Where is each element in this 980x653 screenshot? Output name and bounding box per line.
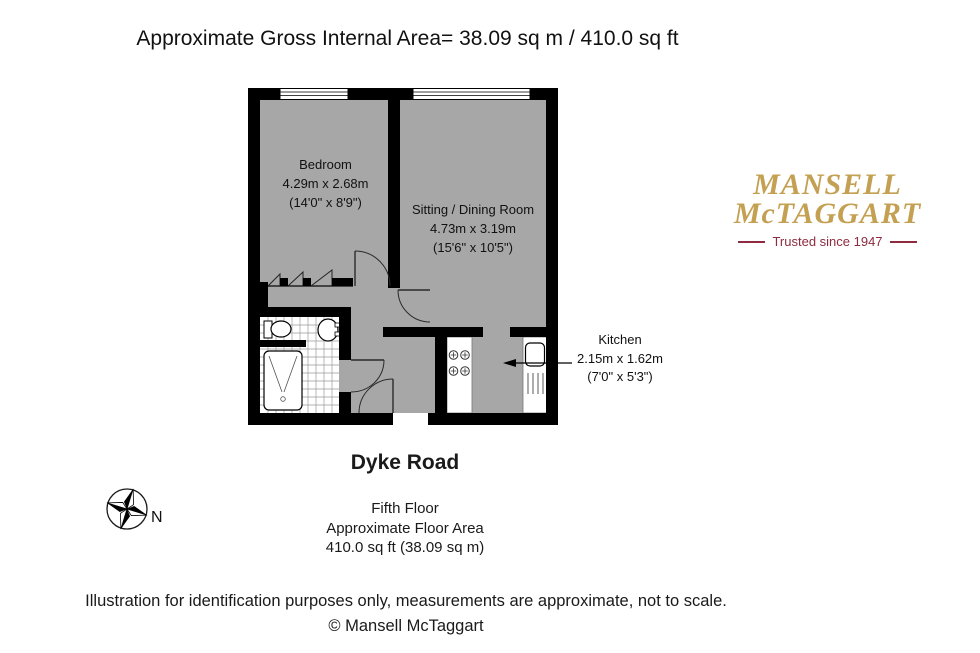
page-title: Approximate Gross Internal Area= 38.09 s… bbox=[0, 27, 815, 51]
street-name: Dyke Road bbox=[255, 451, 555, 475]
sitting-name: Sitting / Dining Room bbox=[397, 200, 549, 219]
toilet-icon bbox=[264, 321, 291, 338]
kitchen-imperial: (7'0" x 5'3") bbox=[566, 368, 674, 387]
bedroom-imperial: (14'0" x 8'9") bbox=[258, 193, 393, 212]
tagline-rule-right bbox=[890, 241, 917, 243]
stove-icon bbox=[447, 337, 472, 413]
compass-icon: N bbox=[100, 483, 172, 539]
sitting-imperial: (15'6" x 10'5") bbox=[397, 238, 549, 257]
kitchen-label: Kitchen 2.15m x 1.62m (7'0" x 5'3") bbox=[566, 331, 674, 387]
kitchen-pointer-arrow-icon bbox=[500, 355, 575, 371]
area-value: 410.0 sq ft (38.09 sq m) bbox=[255, 538, 555, 558]
bedroom-metric: 4.29m x 2.68m bbox=[258, 174, 393, 193]
kitchen-metric: 2.15m x 1.62m bbox=[566, 350, 674, 369]
disclaimer-text: Illustration for identification purposes… bbox=[0, 589, 812, 614]
entrance-opening bbox=[393, 413, 428, 425]
kitchen-name: Kitchen bbox=[566, 331, 674, 350]
area-label: Approximate Floor Area bbox=[255, 519, 555, 539]
logo-name-line1: MANSELL bbox=[730, 170, 925, 199]
floor-details: Fifth Floor Approximate Floor Area 410.0… bbox=[255, 499, 555, 558]
logo-tagline: Trusted since 1947 bbox=[730, 234, 925, 249]
agency-logo: MANSELL McTAGGART Trusted since 1947 bbox=[730, 170, 925, 249]
logo-name-line2: McTAGGART bbox=[730, 199, 925, 228]
footer: Illustration for identification purposes… bbox=[0, 589, 812, 639]
kitchen-sink-icon bbox=[523, 337, 548, 413]
bedroom-name: Bedroom bbox=[258, 155, 393, 174]
tagline-rule-left bbox=[738, 241, 765, 243]
floor-label: Fifth Floor bbox=[255, 499, 555, 519]
north-label: N bbox=[151, 509, 163, 526]
copyright-text: © Mansell McTaggart bbox=[0, 614, 812, 639]
sitting-metric: 4.73m x 3.19m bbox=[397, 219, 549, 238]
tagline-text: Trusted since 1947 bbox=[772, 234, 882, 249]
sitting-dining-label: Sitting / Dining Room 4.73m x 3.19m (15'… bbox=[397, 200, 549, 257]
bedroom-label: Bedroom 4.29m x 2.68m (14'0" x 8'9") bbox=[258, 155, 393, 212]
